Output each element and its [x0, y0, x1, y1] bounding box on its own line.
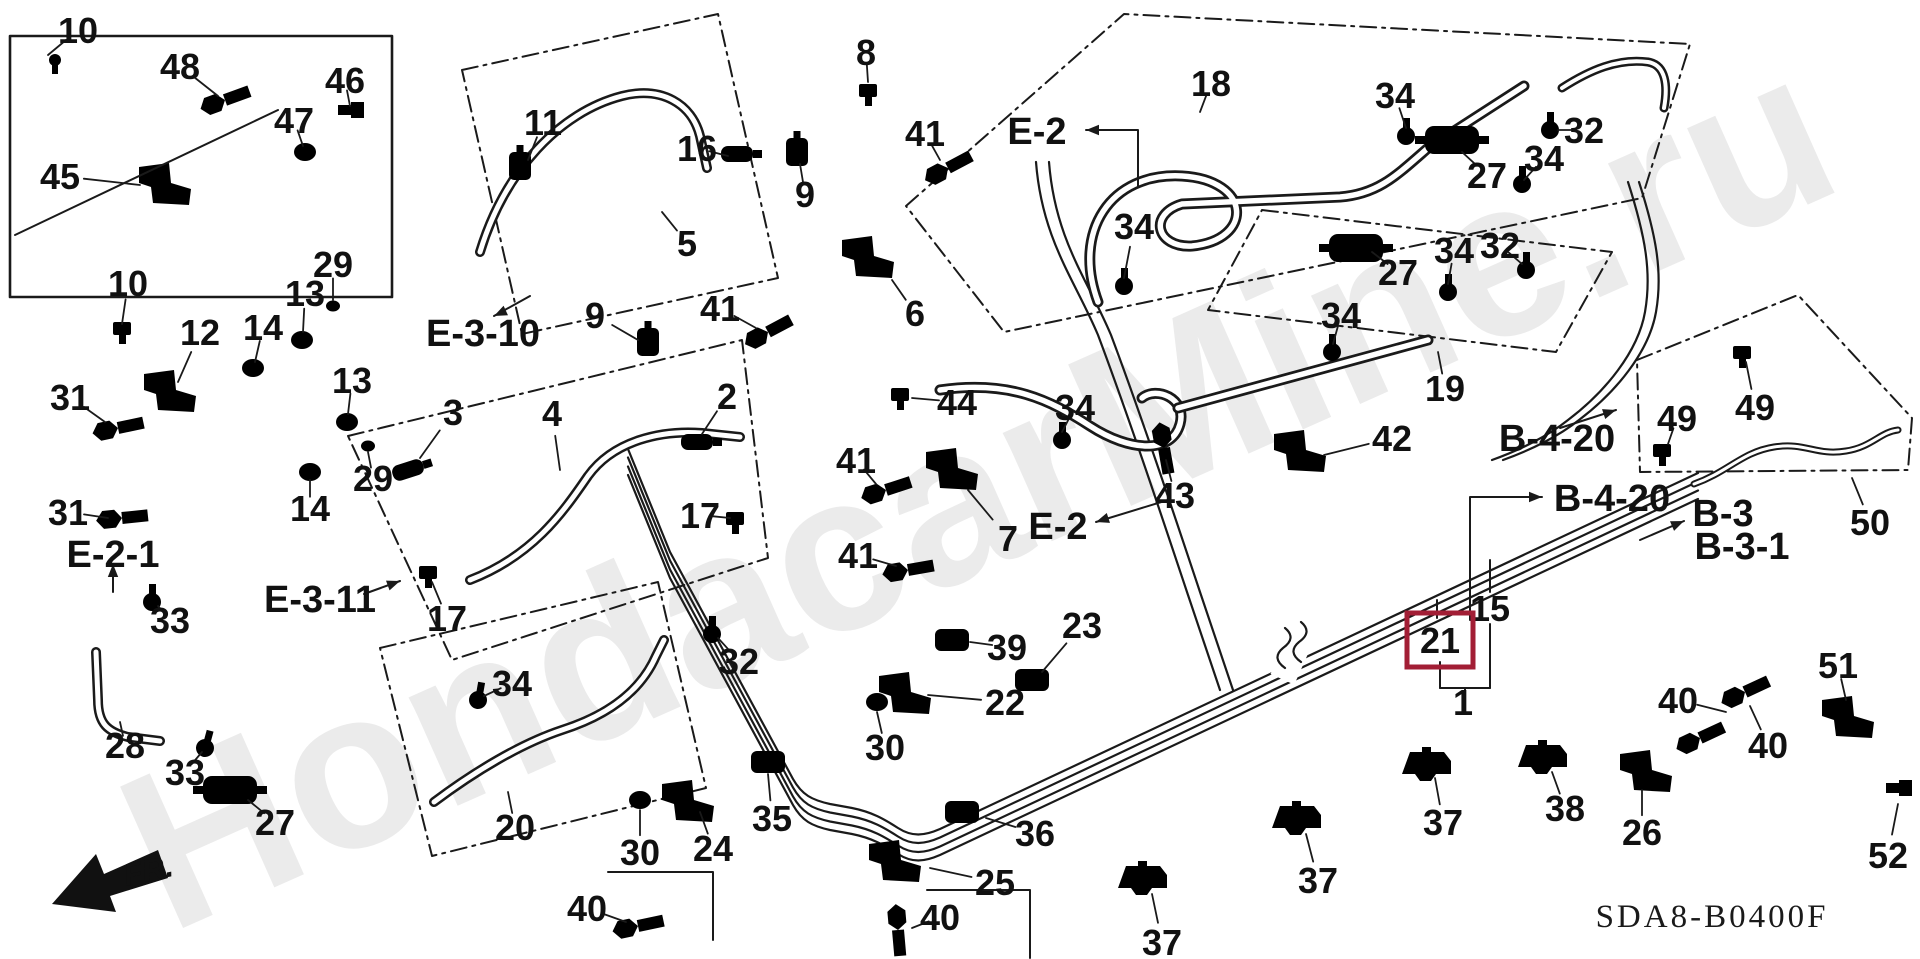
part-number-label-selected[interactable]: 21: [1420, 620, 1460, 661]
part-number-label[interactable]: 11: [524, 102, 562, 143]
part-number-label[interactable]: 35: [752, 798, 792, 839]
bracket-glyph: [1620, 750, 1672, 792]
holder-glyph: [1118, 861, 1167, 895]
bolt-glyph: [1718, 673, 1773, 711]
part-number-label[interactable]: 15: [1470, 588, 1510, 629]
part-number-label[interactable]: 20: [495, 807, 535, 848]
part-number-label[interactable]: 34: [1114, 206, 1154, 247]
part-number-label[interactable]: 28: [105, 725, 145, 766]
ref-label[interactable]: E-2: [1028, 506, 1087, 548]
part-number-label[interactable]: 31: [50, 377, 90, 418]
part-leader-line: [1435, 778, 1440, 804]
part-number-label[interactable]: 14: [290, 488, 330, 529]
connector-glyph: [338, 102, 364, 118]
part-number-label[interactable]: 46: [325, 60, 365, 101]
part-number-label[interactable]: 32: [1564, 110, 1604, 151]
part-number-label[interactable]: 30: [865, 727, 905, 768]
part-number-label[interactable]: 12: [180, 312, 220, 353]
valve-glyph: [721, 146, 762, 162]
part-number-label[interactable]: 2: [717, 376, 737, 417]
holder-glyph: [1402, 747, 1451, 781]
part-number-label[interactable]: 27: [1467, 155, 1507, 196]
ref-arrow: [1086, 130, 1138, 186]
part-number-label[interactable]: 32: [1480, 225, 1520, 266]
part-number-label[interactable]: 45: [40, 156, 80, 197]
part-number-label[interactable]: 40: [567, 888, 607, 929]
pipe-break-mark: [1271, 617, 1320, 684]
washer-glyph: [326, 301, 340, 312]
connector-glyph: [1886, 780, 1912, 796]
clip-glyph: [113, 322, 131, 344]
part-number-label[interactable]: 33: [165, 752, 205, 793]
part-number-label[interactable]: 37: [1142, 922, 1182, 959]
part-number-label[interactable]: 6: [905, 293, 925, 334]
bolt-glyph: [887, 903, 909, 956]
grommet-glyph: [294, 143, 316, 161]
clip-glyph: [859, 84, 877, 106]
part-number-label[interactable]: 9: [585, 295, 605, 336]
part-leader-line: [1042, 643, 1066, 672]
parts-diagram-page: HondacarMine.ru 104846474510291314123113…: [0, 0, 1920, 959]
part-number-label[interactable]: 18: [1191, 63, 1231, 104]
part-number-label[interactable]: 27: [1378, 252, 1418, 293]
clip-glyph: [419, 566, 437, 588]
part-leader-line: [768, 774, 770, 800]
part-number-label[interactable]: 34: [1524, 138, 1564, 179]
part-leader-line: [555, 436, 560, 470]
part-leader-line: [420, 430, 440, 458]
ref-label[interactable]: E-3-11: [264, 579, 376, 621]
part-number-label[interactable]: 31: [48, 492, 88, 533]
part-number-label[interactable]: 40: [1748, 725, 1788, 766]
bracket-glyph: [139, 163, 191, 205]
part-number-label[interactable]: 48: [160, 46, 200, 87]
holder-glyph: [1272, 801, 1321, 835]
parts-diagram: HondacarMine.ru 104846474510291314123113…: [0, 0, 1920, 959]
part-leader-line: [892, 280, 906, 300]
diagram-code: SDA8-B0400F: [1596, 899, 1829, 935]
part-number-label[interactable]: 19: [1425, 368, 1465, 409]
part-leader-line: [1892, 804, 1898, 835]
part-number-label[interactable]: 30: [620, 832, 660, 873]
fuel-hose: [1694, 430, 1898, 484]
part-number-label[interactable]: 40: [920, 897, 960, 938]
part-leader-line: [178, 352, 191, 382]
part-number-label[interactable]: 37: [1423, 802, 1463, 843]
bracket-glyph: [1822, 696, 1874, 738]
part-leader-line: [1746, 362, 1751, 389]
part-number-label[interactable]: 29: [353, 458, 393, 499]
ref-label[interactable]: B-4-20: [1554, 478, 1670, 520]
part-number-label[interactable]: 47: [274, 100, 314, 141]
part-number-label[interactable]: 8: [856, 32, 876, 73]
grommet-glyph: [291, 331, 313, 349]
bracket-glyph: [842, 236, 894, 278]
part-number-label[interactable]: 10: [58, 10, 98, 51]
part-number-label[interactable]: 34: [1434, 230, 1474, 271]
bolt-glyph: [611, 912, 666, 940]
part-number-label[interactable]: 14: [243, 307, 283, 348]
clip-glyph: [1653, 444, 1671, 466]
part-number-label[interactable]: 23: [1062, 605, 1102, 646]
valve-glyph: [390, 455, 434, 483]
part-number-label[interactable]: 13: [285, 273, 325, 314]
part-number-label[interactable]: 24: [693, 828, 733, 869]
canister-glyph: [637, 321, 659, 356]
mount-glyph: [945, 801, 979, 823]
ref-arrow: [386, 581, 400, 591]
part-number-label[interactable]: 9: [795, 174, 815, 215]
part-number-label[interactable]: 17: [427, 598, 467, 639]
ref-label[interactable]: B-3-1: [1694, 526, 1789, 568]
bolt-glyph: [1673, 719, 1728, 757]
grommet-glyph: [866, 693, 888, 711]
part-number-label[interactable]: 36: [1015, 813, 1055, 854]
part-leader-line: [1697, 705, 1726, 712]
part-number-label[interactable]: 22: [985, 682, 1025, 723]
ref-arrow: [1670, 521, 1684, 531]
part-number-label[interactable]: 26: [1622, 812, 1662, 853]
part-number-label[interactable]: 33: [150, 600, 190, 641]
part-leader-line: [1152, 894, 1158, 923]
part-number-label[interactable]: 34: [1055, 387, 1095, 428]
grommet-glyph: [336, 413, 358, 431]
canister-glyph: [786, 131, 808, 166]
mount-glyph: [935, 629, 969, 651]
grommet-glyph: [242, 359, 264, 377]
grommet-glyph: [299, 463, 321, 481]
part-number-label[interactable]: 41: [905, 113, 945, 154]
part-leader-line: [1852, 478, 1863, 504]
holder-glyph: [1518, 740, 1567, 774]
bracket-glyph: [144, 370, 196, 412]
clamp-glyph: [1115, 268, 1133, 295]
part-number-label[interactable]: 39: [987, 627, 1027, 668]
part-number-label[interactable]: 49: [1735, 387, 1775, 428]
part-number-label[interactable]: 25: [975, 862, 1015, 903]
part-leader-line: [1306, 834, 1313, 862]
ref-arrow: [1086, 125, 1099, 135]
clamp-glyph: [1397, 118, 1415, 145]
part-number-label[interactable]: 27: [255, 802, 295, 843]
canister-glyph: [509, 145, 531, 180]
ref-label[interactable]: B-4-20: [1499, 418, 1615, 460]
part-leader-line: [928, 695, 981, 700]
ref-label[interactable]: E-2: [1007, 111, 1066, 153]
part-number-label[interactable]: 50: [1850, 502, 1890, 543]
part-number-label[interactable]: 13: [332, 360, 372, 401]
part-number-label[interactable]: 43: [1155, 475, 1195, 516]
part-leader-line: [662, 212, 677, 231]
part-leader-line: [612, 325, 638, 340]
part-number-label[interactable]: 32: [719, 641, 759, 682]
bolt-glyph: [197, 83, 252, 118]
ref-label[interactable]: E-2-1: [67, 534, 160, 576]
part-number-label[interactable]: 38: [1545, 788, 1585, 829]
part-number-label[interactable]: 37: [1298, 860, 1338, 901]
part-number-label[interactable]: 49: [1657, 398, 1697, 439]
part-number-label[interactable]: 3: [443, 392, 463, 433]
part-number-label[interactable]: 51: [1818, 645, 1858, 686]
part-number-label[interactable]: 41: [838, 535, 878, 576]
part-number-label[interactable]: 17: [680, 495, 720, 536]
mount-glyph: [751, 751, 785, 773]
bolt-glyph: [741, 312, 795, 352]
bracket-glyph: [879, 672, 931, 714]
clip-glyph: [1733, 346, 1751, 368]
part-number-label[interactable]: 41: [836, 440, 876, 481]
part-number-label[interactable]: 41: [700, 288, 740, 329]
sensor-glyph: [47, 48, 63, 74]
fuel-hose: [1694, 430, 1898, 484]
part-number-label[interactable]: 52: [1868, 835, 1908, 876]
part-number-label[interactable]: 42: [1372, 418, 1412, 459]
part-number-label[interactable]: 1: [1453, 682, 1473, 723]
part-number-label[interactable]: 4: [542, 393, 562, 434]
grommet-glyph: [629, 791, 651, 809]
ref-label[interactable]: E-3-10: [426, 313, 540, 355]
part-number-label[interactable]: 34: [1321, 295, 1361, 336]
part-number-label[interactable]: 34: [1375, 75, 1415, 116]
washer-glyph: [361, 441, 375, 452]
part-number-label[interactable]: 44: [937, 382, 977, 423]
part-number-label[interactable]: 40: [1658, 680, 1698, 721]
part-number-label[interactable]: 34: [492, 663, 532, 704]
part-number-label[interactable]: 16: [677, 128, 717, 169]
part-leader-line: [930, 868, 972, 877]
ref-arrow: [1529, 492, 1542, 502]
part-number-label[interactable]: 10: [108, 263, 148, 304]
part-number-label[interactable]: 7: [998, 518, 1018, 559]
part-number-label[interactable]: 5: [677, 223, 697, 264]
